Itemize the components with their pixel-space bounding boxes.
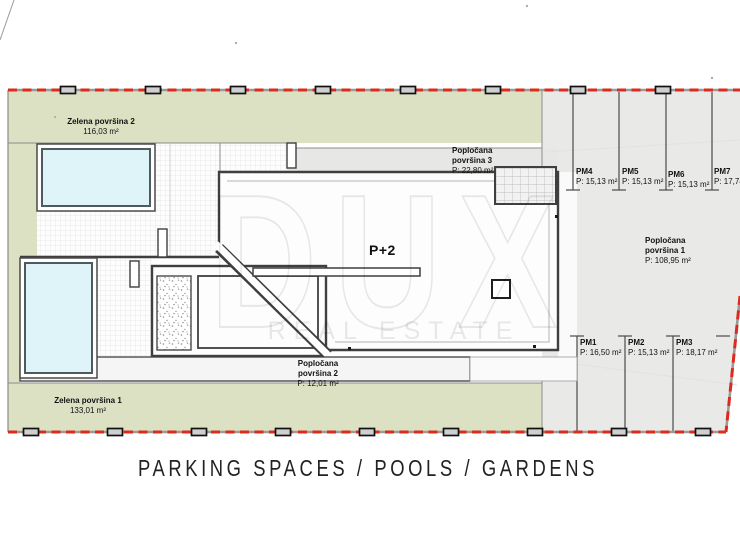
pm7-id: PM7 [714,167,740,177]
canopy-bar [253,268,420,276]
pm1-id: PM1 [580,338,621,348]
speck [526,5,528,7]
parking-label-pm7: PM7 P: 17,74 m² [714,167,740,188]
shaft-square [492,280,510,298]
parking-label-pm5: PM5 P: 15,13 m² [622,167,663,188]
pool-2 [25,263,92,373]
vertex-dot [348,347,351,350]
garden-2-size: 116,03 m² [67,127,135,137]
pm6-id: PM6 [668,170,709,180]
paved-area-3-name: Popločana površina 3 [452,146,506,166]
garden-2-name: Zelena površina 2 [67,117,135,127]
pool-1 [42,149,150,206]
pm2-id: PM2 [628,338,669,348]
gravel-strip [157,276,191,350]
vertex-dot [555,215,558,218]
parking-label-pm4: PM4 P: 15,13 m² [576,167,617,188]
parking-label-pm2: PM2 P: 15,13 m² [628,338,669,359]
paved-area-2-extension [470,357,577,381]
building-label: P+2 [369,242,396,258]
paved-area-3-size: P: 22,80 m² [452,166,506,176]
vertex-dot [533,345,536,348]
paved-area-2-name: Popločana površina 2 [290,359,346,379]
pm1-size: P: 16,50 m² [580,348,621,357]
pm5-id: PM5 [622,167,663,177]
garden-1-side-strip [8,257,20,383]
garden-2-label: Zelena površina 2 116,03 m² [67,117,135,137]
pm6-size: P: 15,13 m² [668,180,709,189]
garden-2-side-strip [8,143,37,257]
pm3-size: P: 18,17 m² [676,348,717,357]
deck-above-building [219,143,287,172]
paved-area-3-label: Popločana površina 3 P: 22,80 m² [452,146,506,175]
page-title: PARKING SPACES / POOLS / GARDENS [138,455,598,482]
pm3-id: PM3 [676,338,717,348]
pm2-size: P: 15,13 m² [628,348,669,357]
garden-1-label: Zelena površina 1 133,01 m² [54,396,122,416]
paved-area-1-size: P: 108,95 m² [645,256,699,266]
parking-label-pm1: PM1 P: 16,50 m² [580,338,621,359]
parking-label-pm3: PM3 P: 18,17 m² [676,338,717,359]
paved-area-1-name: Popločana površina 1 [645,236,699,256]
garden-1-name: Zelena površina 1 [54,396,122,406]
speck [54,116,56,118]
pillar [287,143,296,168]
pillar [158,229,167,257]
paved-area-2-size: P: 12,01 m² [290,379,346,389]
parking-label-pm6: PM6 P: 15,13 m² [668,170,709,191]
pm4-id: PM4 [576,167,617,177]
pm5-size: P: 15,13 m² [622,177,663,186]
walkway-strip [558,172,577,357]
paved-area-1-label: Popločana površina 1 P: 108,95 m² [645,236,699,265]
pm7-size: P: 17,74 m² [714,177,740,186]
survey-line [0,0,14,40]
paved-area-2-label: Popločana površina 2 P: 12,01 m² [290,359,346,388]
pm4-size: P: 15,13 m² [576,177,617,186]
speck [235,42,237,44]
garden-1-size: 133,01 m² [54,406,122,416]
site-plan-page: DUX REAL ESTATE Zelena površina 2 116,03… [0,0,740,550]
speck [711,77,713,79]
pillar [130,261,139,287]
